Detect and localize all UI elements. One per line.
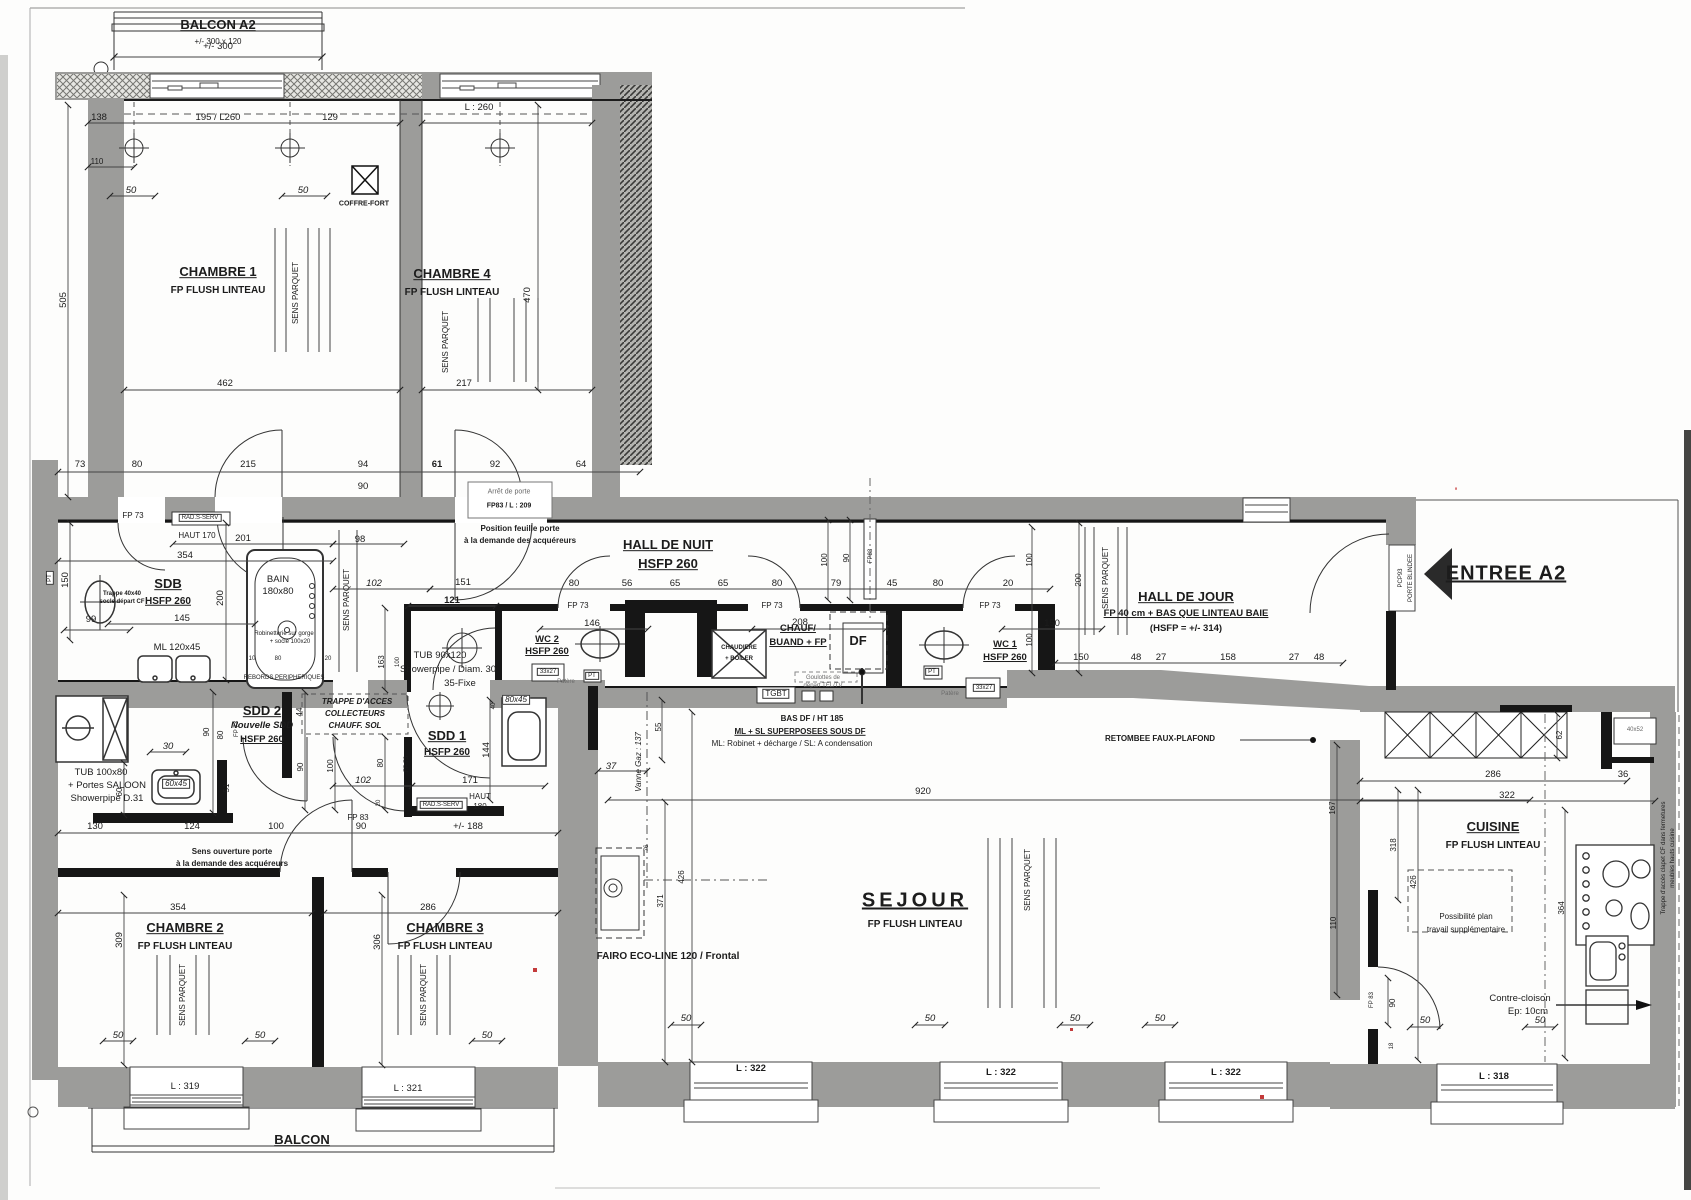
plan-annotation: 20	[325, 656, 332, 662]
plan-annotation: 920	[915, 787, 931, 797]
plan-annotation: 80	[217, 731, 225, 740]
plan-annotation: 62	[1556, 731, 1564, 740]
room-label-balcon-a2: BALCON A2	[180, 18, 255, 32]
room-label-wc1: WC 1	[993, 640, 1017, 650]
plan-annotation: SENS PARQUET	[442, 311, 450, 373]
plan-annotation: 150	[1044, 619, 1060, 629]
plan-annotation: 37	[606, 762, 617, 772]
plan-annotation: 90	[203, 728, 211, 737]
plan-annotation: 79	[831, 579, 842, 589]
plan-annotation: 50	[1420, 1016, 1431, 1026]
plan-annotation: Arrêt de porte	[488, 488, 531, 495]
plan-annotation: 48	[1131, 653, 1142, 663]
plan-annotation: FP FLUSH LINTEAU	[171, 286, 266, 297]
plan-annotation: TUB 90x120	[414, 651, 467, 661]
room-label-chambre-1: CHAMBRE 1	[179, 265, 256, 279]
plan-annotation: 167	[1329, 801, 1337, 814]
plan-annotation: Trappe d'accès clapet CF dans fermetures	[1661, 802, 1667, 915]
plan-annotation: 33x27	[537, 668, 559, 676]
room-label-hall-de-nuit: HALL DE NUIT	[623, 538, 713, 552]
plan-annotation: 505	[59, 292, 69, 308]
plan-annotation: socle départ CF	[99, 599, 144, 605]
plan-annotation: Contre-cloison	[1489, 994, 1550, 1004]
room-label-sdb: SDB	[154, 577, 181, 591]
plan-annotation: 90	[356, 822, 367, 832]
plan-annotation: DF	[849, 634, 866, 648]
plan-annotation: 64	[576, 460, 587, 470]
plan-annotation: Robinetterie sur gorge	[254, 631, 313, 637]
plan-annotation: 56	[622, 579, 633, 589]
plan-annotation: 20	[376, 800, 382, 807]
plan-annotation: HSFP 260	[240, 735, 284, 745]
plan-annotation: 73	[75, 460, 86, 470]
plan-annotation: '	[1455, 487, 1457, 497]
plan-annotation: SENS PARQUET	[1102, 547, 1110, 609]
plan-annotation: 80	[569, 579, 580, 589]
plan-annotation: Patère	[557, 679, 575, 685]
plan-annotation: FP83 / L : 209	[487, 502, 532, 509]
plan-annotation: 100	[1026, 633, 1034, 646]
plan-annotation: ML + SL SUPERPOSEES SOUS DF	[734, 728, 865, 736]
plan-annotation: 45	[887, 579, 898, 589]
plan-annotation: FP FLUSH LINTEAU	[398, 942, 493, 953]
plan-annotation: 20	[1003, 579, 1014, 589]
plan-annotation: 322	[1499, 791, 1515, 801]
plan-annotation: 50	[925, 1014, 936, 1024]
plan-annotation: à la demande des acquéreurs	[464, 537, 576, 545]
plan-annotation: FP 73	[404, 756, 410, 772]
plan-annotation: 129	[322, 113, 338, 123]
plan-annotation: Patère	[941, 691, 959, 697]
plan-annotation: L : 318	[1479, 1072, 1509, 1082]
plan-annotation: 102	[355, 776, 371, 786]
plan-annotation: +/- 188	[453, 822, 483, 832]
plan-annotation: 354	[177, 551, 193, 561]
room-label-chambre-4: CHAMBRE 4	[413, 267, 490, 281]
plan-annotation: 100	[268, 822, 284, 832]
plan-annotation: L : 319	[171, 1082, 200, 1092]
plan-annotation: 110	[1330, 917, 1338, 930]
plan-annotation: SENS PARQUET	[1024, 849, 1032, 911]
plan-labels: BALCON A2+/- 300 x 120+/- 300138195 / L2…	[0, 0, 1691, 1200]
plan-annotation: FP 73	[979, 602, 1000, 610]
plan-annotation: 171	[462, 776, 478, 786]
plan-annotation: 80	[772, 579, 783, 589]
plan-annotation: HSFP 260	[145, 597, 191, 608]
plan-annotation: PORTE BLINDEE	[1408, 554, 1414, 602]
plan-annotation: + socle 100x20	[270, 639, 311, 645]
plan-annotation: 55	[655, 723, 663, 732]
plan-annotation: PT	[925, 668, 939, 676]
plan-annotation: 18	[1389, 1043, 1395, 1050]
plan-annotation: 146	[584, 619, 600, 629]
plan-annotation: 180x80	[262, 587, 293, 597]
plan-annotation: 371	[657, 894, 665, 907]
plan-annotation: HAUT	[469, 793, 491, 801]
plan-annotation: SENS PARQUET	[292, 262, 300, 324]
plan-annotation: 60	[116, 788, 124, 797]
safe-label: COFFRE-FORT	[339, 200, 389, 207]
plan-annotation: ML 120x45	[154, 643, 201, 653]
plan-annotation: travail supplémentaire	[1427, 926, 1505, 934]
plan-annotation: BAIN	[267, 575, 289, 585]
plan-annotation: 130	[87, 822, 103, 832]
plan-annotation: 426	[1410, 875, 1418, 888]
plan-annotation: Showerpipe D.31	[71, 794, 144, 804]
plan-annotation: 10	[249, 656, 256, 662]
plan-annotation: 80	[275, 656, 282, 662]
plan-annotation: (HSFP = +/- 314)	[1150, 624, 1222, 634]
plan-annotation: 318	[1390, 838, 1398, 851]
room-label-wc2: WC 2	[535, 635, 559, 645]
plan-annotation: 50	[482, 1031, 493, 1041]
plan-annotation: FP83	[868, 549, 874, 563]
plan-annotation: 92	[490, 460, 501, 470]
room-label-sejour: SEJOUR	[862, 891, 968, 912]
plan-annotation: 80	[933, 579, 944, 589]
plan-annotation: Nouvelle SDD	[231, 721, 293, 731]
plan-annotation: 50	[255, 1031, 266, 1041]
plan-annotation: 50	[1070, 1014, 1081, 1024]
plan-annotation: 470	[523, 287, 533, 303]
plan-annotation: 90	[1389, 999, 1397, 1008]
plan-annotation: ML: Robinet + décharge / SL: A condensat…	[712, 740, 873, 748]
plan-annotation: 50	[298, 186, 309, 196]
room-label-sdd1: SDD 1	[428, 729, 466, 743]
plan-annotation: HSFP 260	[424, 748, 470, 759]
plan-annotation: meubles hauts cuisine	[1670, 828, 1676, 887]
plan-annotation: 98	[355, 535, 366, 545]
plan-annotation: Ep: 10cm	[1508, 1007, 1548, 1017]
plan-annotation: 150	[61, 572, 71, 588]
plan-annotation: Sens ouverture porte	[192, 848, 272, 856]
plan-annotation: FP 83	[1369, 992, 1375, 1008]
plan-annotation: 61	[432, 460, 443, 470]
plan-annotation: +/- 300	[203, 42, 233, 52]
plan-annotation: 354	[170, 903, 186, 913]
plan-annotation: REBORDS PERIPHERIQUES	[244, 675, 325, 681]
plan-annotation: 40x52	[1627, 727, 1643, 733]
plan-annotation: 80	[132, 460, 143, 470]
plan-annotation: 100	[821, 553, 829, 566]
plan-annotation: PCP93	[1398, 568, 1404, 587]
plan-annotation: FP 73	[567, 602, 588, 610]
plan-annotation: FP FLUSH LINTEAU	[405, 288, 500, 299]
plan-annotation: 138	[91, 113, 107, 123]
plan-annotation: 215	[240, 460, 256, 470]
plan-annotation: 50	[113, 1031, 124, 1041]
plan-annotation: PT	[46, 571, 54, 585]
plan-annotation: à la demande des acquéreurs	[176, 860, 288, 868]
plan-annotation: 90	[843, 554, 851, 563]
plan-annotation: FP 40 cm + BAS QUE LINTEAU BAIE	[1104, 609, 1269, 619]
plan-annotation: 110	[91, 158, 104, 166]
plan-annotation: 33x27	[973, 684, 995, 692]
plan-annotation: 94	[358, 460, 369, 470]
plan-annotation: HSFP 260	[638, 557, 698, 571]
plan-annotation: 158	[1220, 653, 1236, 663]
plan-annotation: FP 73	[761, 602, 782, 610]
plan-annotation: HAUT 170	[178, 532, 215, 540]
plan-annotation: Goulottes de	[806, 675, 840, 681]
plan-annotation: 145	[174, 614, 190, 624]
plan-annotation: 90	[358, 482, 369, 492]
plan-annotation: L : 322	[736, 1064, 766, 1074]
plan-annotation: Showerpipe / Diam. 30	[400, 665, 496, 675]
plan-annotation: 65	[670, 579, 681, 589]
plan-annotation: CHAUFF. SOL	[329, 722, 382, 730]
plan-annotation: L : 322	[986, 1068, 1016, 1078]
plan-annotation: 163	[378, 655, 386, 668]
plan-annotation: 27	[1289, 653, 1300, 663]
plan-annotation: 217	[456, 379, 472, 389]
plan-annotation: 50	[681, 1014, 692, 1024]
plan-annotation: 462	[217, 379, 233, 389]
ceiling-drop-label: RETOMBEE FAUX-PLAFOND	[1105, 735, 1215, 743]
plan-annotation: 364	[1558, 901, 1566, 914]
plan-annotation: CHAUDIERE	[721, 645, 757, 651]
plan-annotation: 309	[115, 932, 125, 948]
plan-annotation: L : 260	[465, 103, 494, 113]
plan-annotation: SENS PARQUET	[343, 569, 351, 631]
plan-annotation: départ TEL/TV	[804, 683, 843, 689]
room-label-cuisine: CUISINE	[1467, 820, 1520, 834]
plan-annotation: 50	[126, 186, 137, 196]
plan-annotation: HSFP 260	[983, 653, 1027, 663]
plan-annotation: 195 / L260	[196, 113, 241, 123]
plan-annotation: 60x45	[162, 779, 190, 789]
plan-annotation: 27	[1156, 653, 1167, 663]
plan-annotation: 90	[297, 763, 305, 772]
plan-annotation: SENS PARQUET	[179, 964, 187, 1026]
plan-annotation: 151	[455, 578, 471, 588]
plan-annotation: 80x45	[502, 695, 530, 705]
plan-annotation: FP 73	[122, 512, 143, 520]
plan-annotation: 51	[223, 784, 231, 793]
plan-annotation: + Portes SALOON	[68, 781, 146, 791]
room-label-balcon: BALCON	[274, 1133, 330, 1147]
plan-annotation: 286	[420, 903, 436, 913]
plan-annotation: L : 321	[394, 1084, 423, 1094]
plan-annotation: SENS PARQUET	[420, 964, 428, 1026]
plan-annotation: 426	[678, 870, 686, 883]
fireplace-label: FAIRO ECO-LINE 120 / Frontal	[597, 952, 740, 963]
plan-annotation: 124	[184, 822, 200, 832]
plan-annotation: HSFP 260	[525, 647, 569, 657]
entry-label: ENTREE A2	[1446, 564, 1567, 585]
plan-annotation: TRAPPE D'ACCES	[322, 698, 392, 706]
plan-annotation: 99	[86, 615, 97, 625]
plan-annotation: TGBT	[762, 689, 789, 699]
plan-annotation: 100	[1026, 553, 1034, 566]
plan-annotation: 286	[1485, 770, 1501, 780]
floor-plan: BALCON A2+/- 300 x 120+/- 300138195 / L2…	[0, 0, 1691, 1200]
plan-annotation: L : 322	[1211, 1068, 1241, 1078]
plan-annotation: 30	[163, 742, 174, 752]
plan-annotation: Vanne Gaz : 137	[635, 732, 643, 792]
plan-annotation: Trappe 40x40	[103, 591, 141, 597]
plan-annotation: BAS DF / HT 185	[781, 715, 844, 723]
plan-annotation: 35-Fixe	[444, 679, 476, 689]
plan-annotation: 200	[1075, 573, 1083, 586]
plan-annotation: + BOILER	[725, 656, 753, 662]
plan-annotation: 36	[1618, 770, 1629, 780]
plan-annotation: 201	[235, 534, 251, 544]
room-label-hall-de-jour: HALL DE JOUR	[1138, 590, 1234, 604]
plan-annotation: 80	[377, 759, 385, 768]
plan-annotation: 100	[327, 759, 335, 772]
plan-annotation: FP FLUSH LINTEAU	[138, 942, 233, 953]
plan-annotation: 180	[473, 803, 486, 811]
plan-annotation: TUB 100x80	[75, 768, 128, 778]
plan-annotation: 306	[373, 934, 383, 950]
plan-annotation: RAD.S-SERV	[179, 514, 222, 522]
room-label-chambre-3: CHAMBRE 3	[406, 921, 483, 935]
plan-annotation: 44	[296, 708, 304, 717]
plan-annotation: 50	[1155, 1014, 1166, 1024]
plan-annotation: 48	[1314, 653, 1325, 663]
plan-annotation: Possibilité plan	[1439, 913, 1492, 921]
plan-annotation: PT	[585, 672, 599, 680]
plan-annotation: 102	[366, 579, 382, 589]
plan-annotation: 40	[491, 703, 497, 710]
plan-annotation: Position feuille porte	[480, 525, 559, 533]
plan-annotation: 150	[1073, 653, 1089, 663]
room-label-chambre-2: CHAMBRE 2	[146, 921, 223, 935]
plan-annotation: 76	[644, 845, 650, 852]
plan-annotation: BUAND + FP	[769, 638, 826, 648]
room-label-sdd2: SDD 2	[243, 704, 281, 718]
plan-annotation: FP FLUSH LINTEAU	[1446, 841, 1541, 852]
room-label-chauf-buand: CHAUF/	[780, 624, 816, 634]
plan-annotation: 144	[482, 742, 492, 758]
plan-annotation: FP FLUSH LINTEAU	[868, 920, 963, 931]
plan-annotation: FP 73	[234, 721, 240, 737]
plan-annotation: COLLECTEURS	[325, 710, 385, 718]
plan-annotation: 121	[444, 596, 460, 606]
plan-annotation: 200	[216, 590, 226, 606]
plan-annotation: 65	[718, 579, 729, 589]
plan-annotation: 50	[1535, 1016, 1546, 1026]
plan-annotation: RAD.S-SERV	[420, 801, 463, 809]
